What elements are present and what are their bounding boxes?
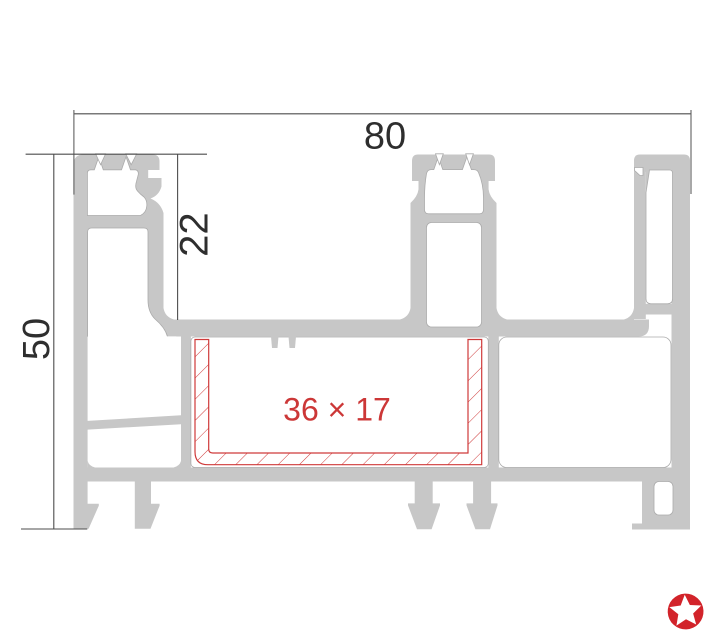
svg-text:36 × 17: 36 × 17 (283, 392, 391, 428)
svg-text:50: 50 (16, 318, 58, 360)
svg-text:80: 80 (364, 116, 406, 158)
svg-text:22: 22 (173, 212, 217, 257)
